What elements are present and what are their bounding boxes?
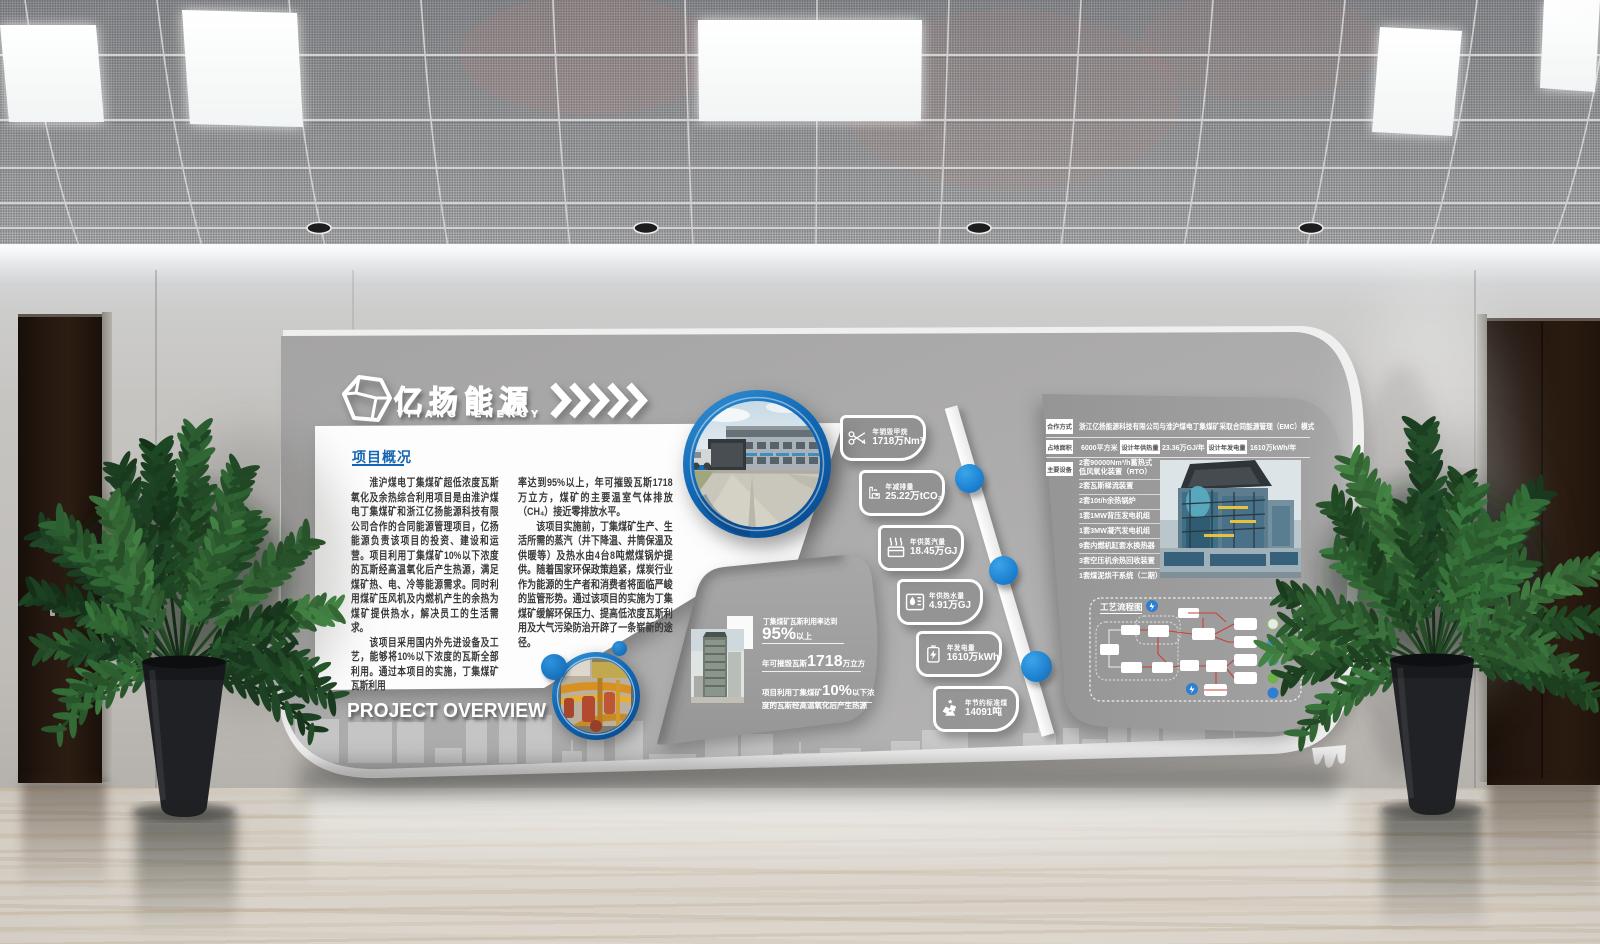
svg-text:工艺流程图: 工艺流程图 [1100,602,1143,612]
